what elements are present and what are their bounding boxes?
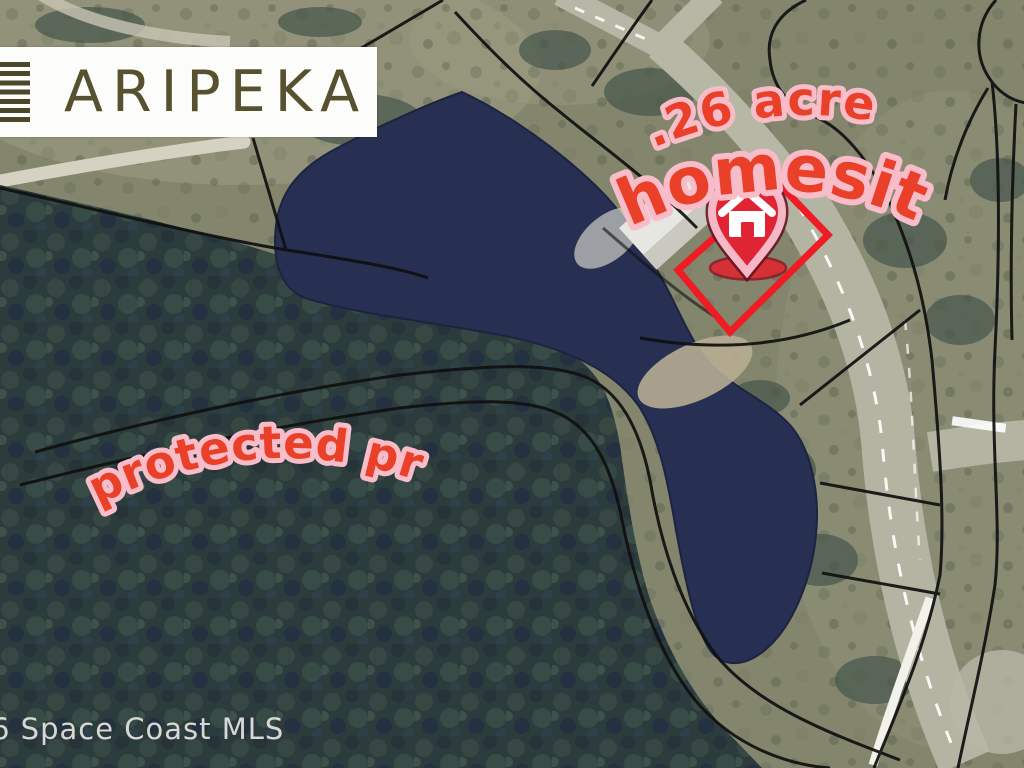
logo-box: ARIPEKA (0, 47, 377, 137)
mls-watermark: 6 Space Coast MLS (0, 712, 284, 746)
listing-photo-collage: .26 acre homesite! protected preserve AR… (0, 0, 1024, 768)
horizontal-bars-icon (0, 62, 30, 123)
logo-text: ARIPEKA (64, 64, 368, 121)
